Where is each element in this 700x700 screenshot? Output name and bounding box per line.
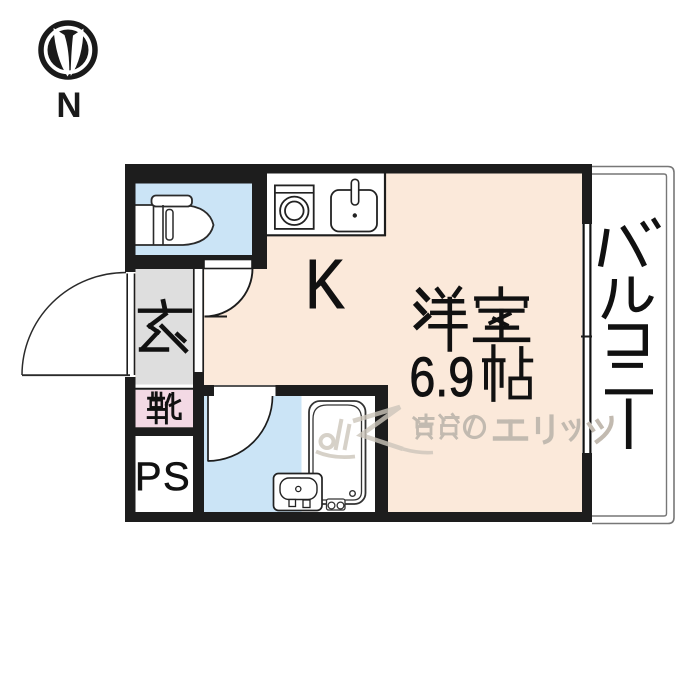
svg-text:N: N [56, 86, 81, 125]
svg-text:6.9: 6.9 [409, 346, 474, 408]
svg-text:K: K [305, 244, 345, 323]
svg-text:PS: PS [135, 455, 191, 499]
